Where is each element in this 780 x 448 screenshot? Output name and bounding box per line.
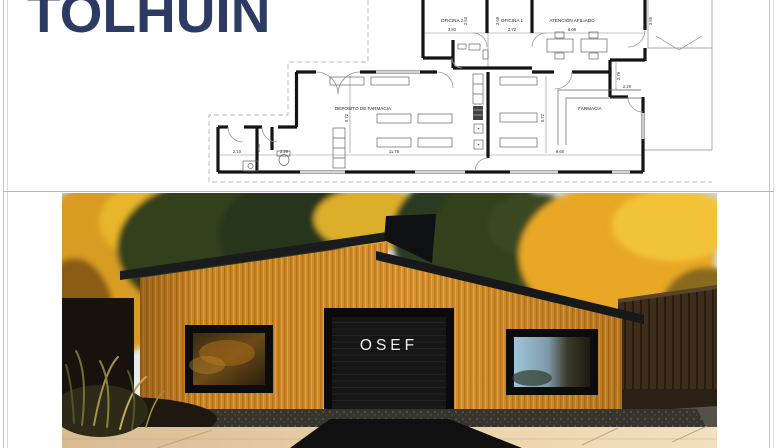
- page-left-border-inner: [7, 0, 8, 448]
- dim-bano-depth: 2.30: [256, 143, 261, 152]
- plan-walls: [218, 0, 645, 172]
- plan-furniture: [243, 32, 641, 171]
- page-right-border-outer: [773, 0, 774, 448]
- stove-grid: [473, 106, 483, 120]
- left-window: [185, 325, 273, 393]
- dim-farmacia-width: 9.60: [556, 149, 565, 154]
- right-window: [506, 329, 598, 395]
- dim-farmacia-depth: 5.72: [540, 113, 545, 122]
- page-right-border-inner: [769, 0, 770, 448]
- room-label-oficina-2: OFICINA 2: [441, 18, 464, 23]
- entrance-vestibule: [643, 0, 712, 150]
- wood-fence: [618, 285, 717, 419]
- osef-sign: OSEF: [360, 337, 418, 354]
- dim-deposito-width: 11.78: [389, 149, 400, 154]
- page-left-border-outer: [3, 0, 4, 448]
- dim-bano1-width: 2.10: [233, 149, 242, 154]
- dim-oficina-2-width: 3.82: [448, 27, 457, 32]
- room-label-farmacia: FARMACIA: [578, 106, 602, 111]
- dim-oficina-2-depth: 2.53: [463, 16, 468, 25]
- dim-atencion-width: 6.08: [568, 27, 577, 32]
- desk-1: [547, 39, 573, 52]
- building-photo: OSEF: [62, 193, 717, 448]
- dim-acceso-width: 2.20: [623, 84, 632, 89]
- floor-plan-svg: OFICINA 2 3.82 2.53 3.68 OFICINA 1 2.72 …: [198, 0, 718, 190]
- building-photo-svg: OSEF: [62, 193, 717, 448]
- door-arcs: [228, 30, 645, 171]
- dim-deposito-depth: 5.72: [344, 113, 349, 122]
- garage-door: [332, 317, 446, 420]
- desk-2: [581, 39, 607, 52]
- plan-windows: [300, 71, 644, 173]
- room-label-deposito: DEPOSITO DE FARMACIA: [335, 106, 392, 111]
- dim-pasillo-depth: 2.79: [616, 71, 621, 80]
- section-divider: [4, 191, 774, 192]
- room-label-oficina-1: OFICINA 1: [501, 18, 524, 23]
- dim-bano2-width: 2.29: [280, 149, 289, 154]
- dim-oficina-1-width: 2.72: [508, 27, 517, 32]
- room-label-atencion-afiliado: ATENCIÓN AFILIADO: [549, 17, 595, 23]
- document-page: { "page": { "title": "TOLHUIN" }, "floor…: [0, 0, 780, 448]
- entrance: OSEF: [324, 308, 454, 420]
- dim-atencion-depth: 3.55: [648, 16, 653, 25]
- dim-oficina-1-depth: 3.68: [495, 16, 500, 25]
- floor-plan: OFICINA 2 3.82 2.53 3.68 OFICINA 1 2.72 …: [198, 0, 718, 190]
